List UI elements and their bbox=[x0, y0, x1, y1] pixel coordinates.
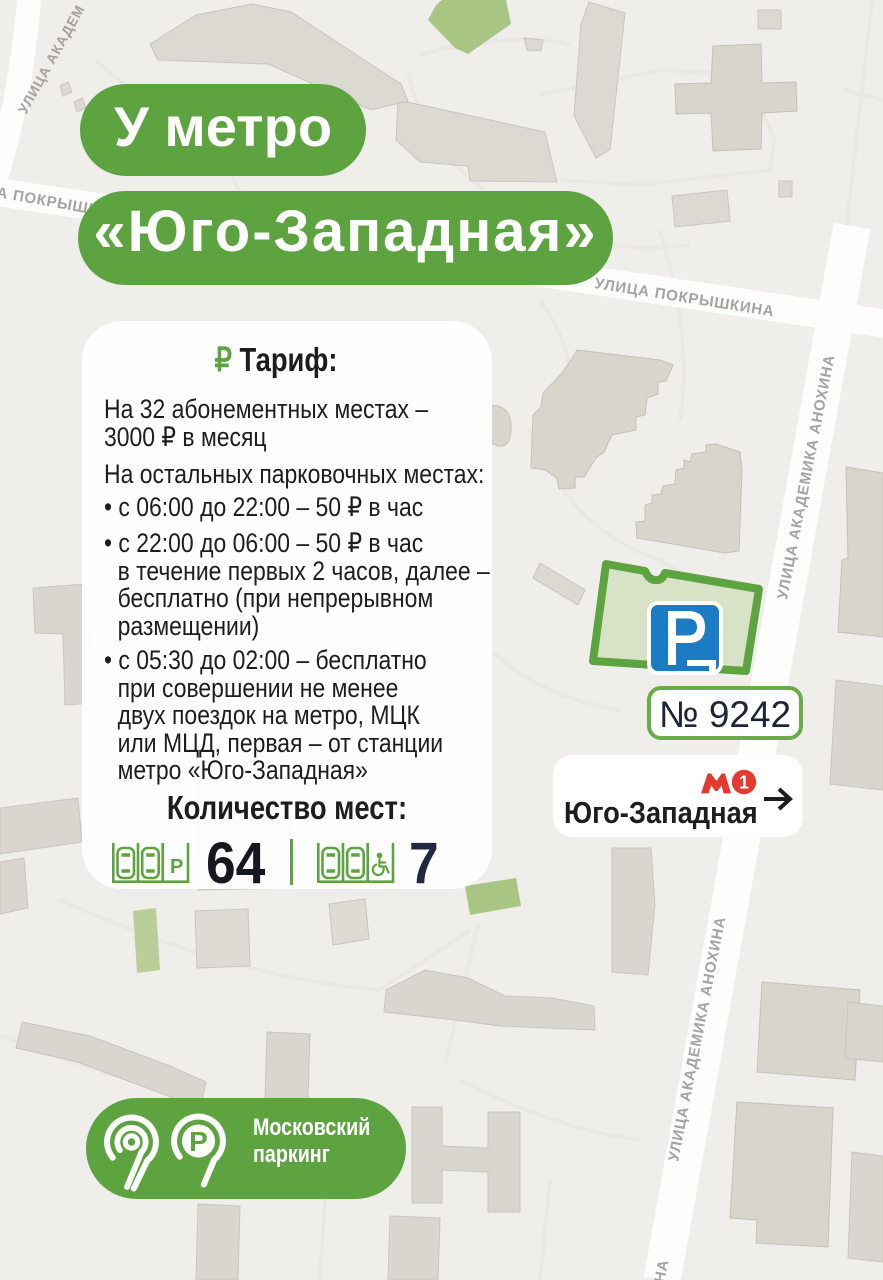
svg-text:P: P bbox=[170, 856, 183, 878]
svg-text:P: P bbox=[189, 1126, 208, 1157]
svg-text:1: 1 bbox=[739, 773, 749, 793]
